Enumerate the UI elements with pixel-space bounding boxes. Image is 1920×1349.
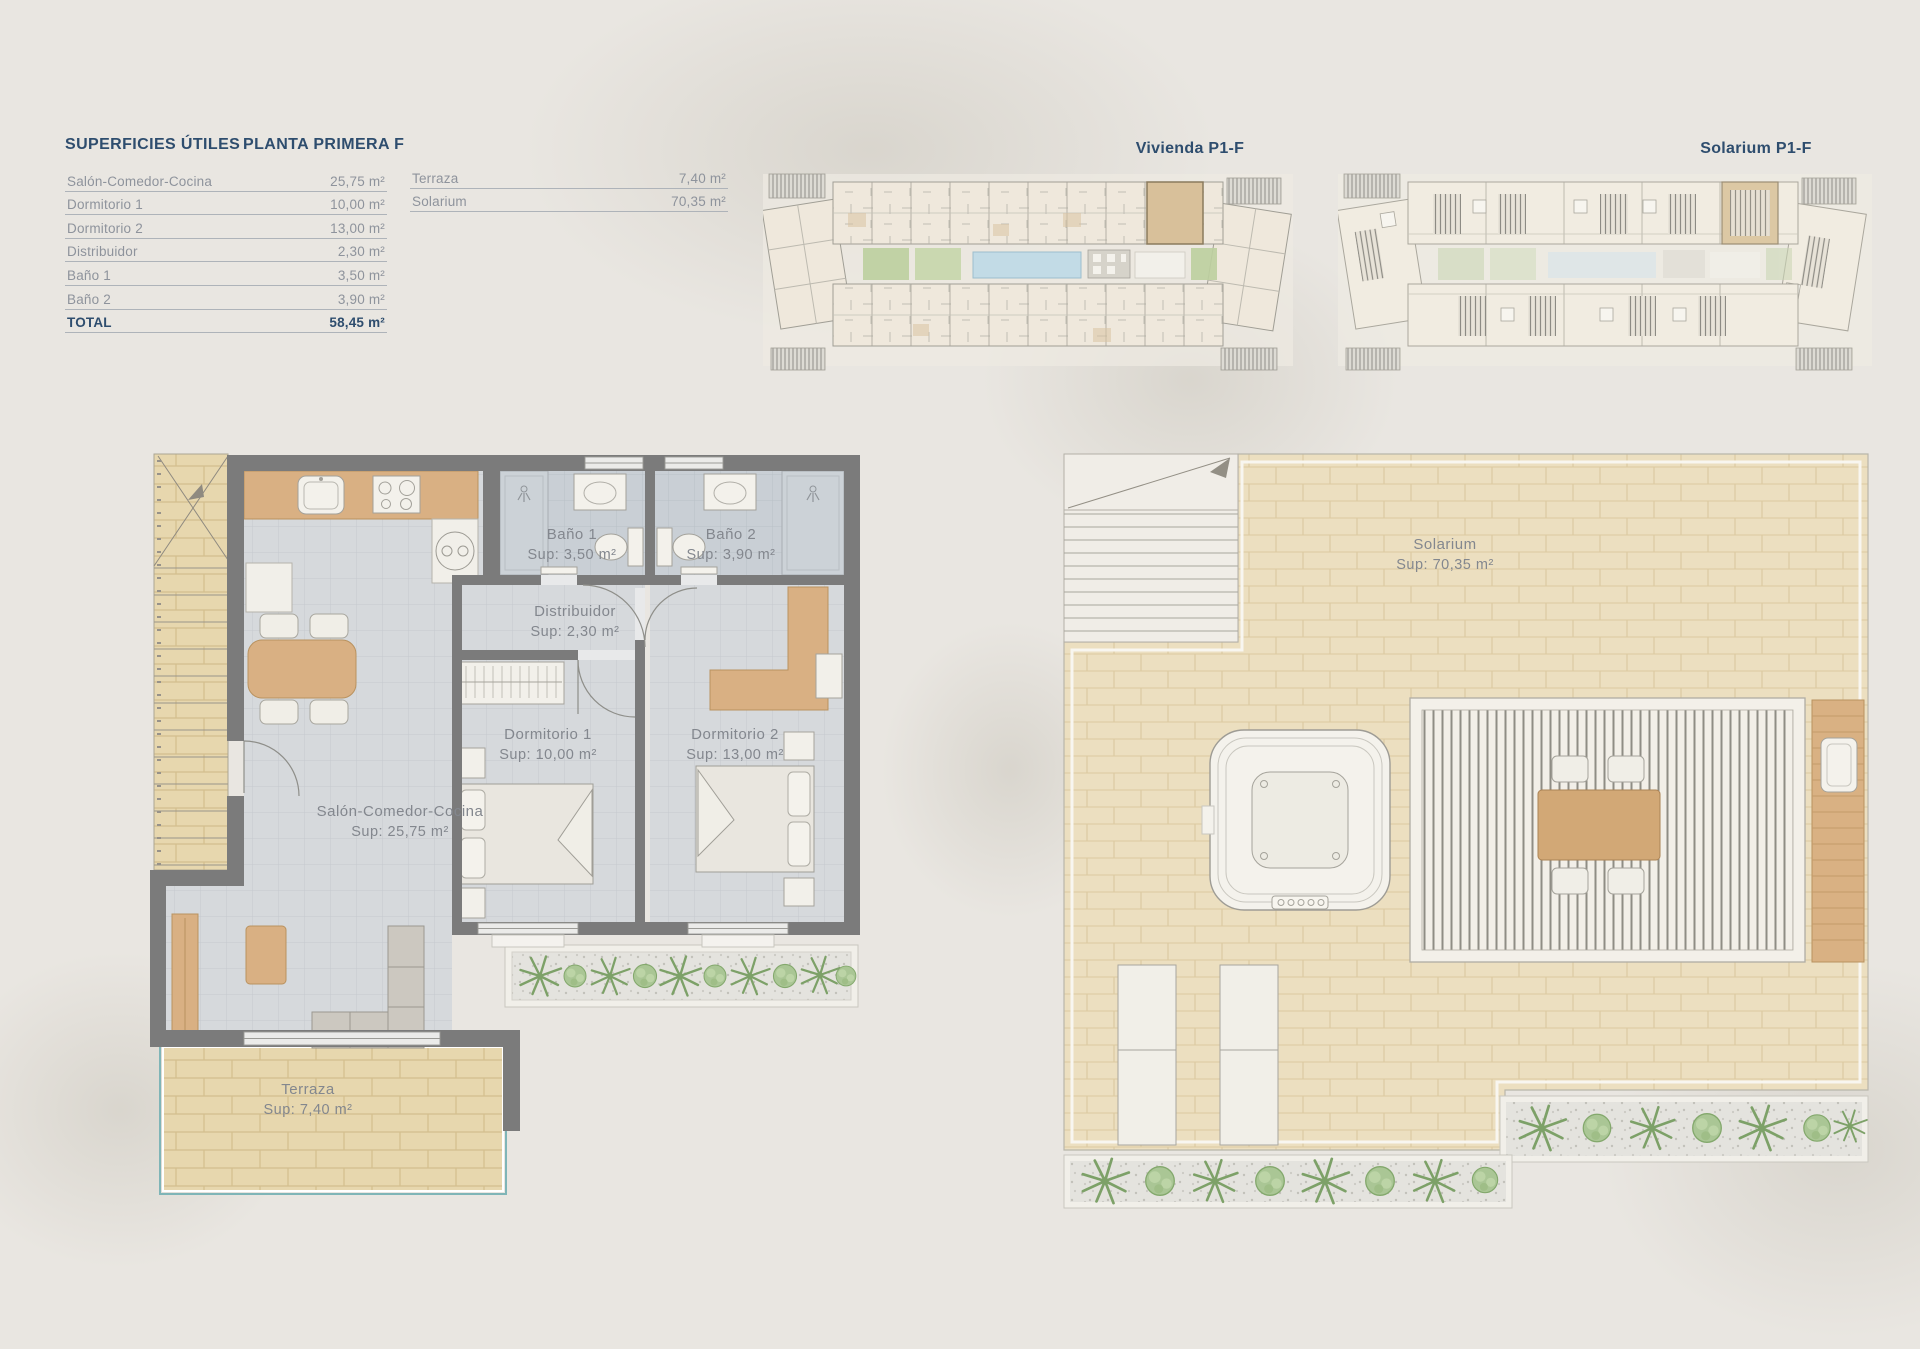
rooftop-stairs xyxy=(1064,454,1238,642)
row-label: Baño 2 xyxy=(67,292,111,307)
room-label-dormitorio1: Dormitorio 1 Sup: 10,00 m² xyxy=(499,725,597,765)
room-area: Sup: 10,00 m² xyxy=(499,747,597,763)
room-area: Sup: 13,00 m² xyxy=(686,747,784,763)
wood-deck xyxy=(1812,700,1864,962)
garden-right xyxy=(1500,1096,1868,1162)
floor-name: PLANTA PRIMERA F xyxy=(243,136,404,154)
table-row: Dormitorio 2 13,00 m² xyxy=(65,215,387,239)
table-row: Solarium 70,35 m² xyxy=(410,189,728,213)
room-area: Sup: 3,90 m² xyxy=(686,547,775,563)
room-name: Distribuidor xyxy=(534,603,616,620)
row-value: 70,35 m² xyxy=(671,194,726,209)
site-plan-solarium xyxy=(1338,168,1872,373)
exterior-stairs xyxy=(154,454,228,870)
pergola xyxy=(1410,698,1805,962)
areas-rows: Salón-Comedor-Cocina 25,75 m² Dormitorio… xyxy=(65,168,387,333)
highlighted-unit xyxy=(1147,182,1203,244)
row-value: 58,45 m² xyxy=(329,315,385,330)
room-label-bano2: Baño 2 Sup: 3,90 m² xyxy=(686,525,775,565)
overview-vivienda-title: Vivienda P1-F xyxy=(1136,140,1245,158)
row-label: Solarium xyxy=(412,194,467,209)
brochure-page: SUPERFICIES ÚTILES PLANTA PRIMERA F Saló… xyxy=(0,0,1920,1349)
row-value: 3,50 m² xyxy=(338,268,385,283)
row-value: 2,30 m² xyxy=(338,244,385,259)
row-label: Salón-Comedor-Cocina xyxy=(67,174,212,189)
areas-table: SUPERFICIES ÚTILES PLANTA PRIMERA F Saló… xyxy=(65,136,387,333)
row-label: Baño 1 xyxy=(67,268,111,283)
row-value: 25,75 m² xyxy=(330,174,385,189)
row-label: Terraza xyxy=(412,171,458,186)
room-name: Salón-Comedor-Cocina xyxy=(317,803,484,820)
row-value: 3,90 m² xyxy=(338,292,385,307)
row-value: 7,40 m² xyxy=(679,171,726,186)
planter-bed xyxy=(505,945,858,1007)
room-area: Sup: 7,40 m² xyxy=(263,1102,352,1118)
row-value: 10,00 m² xyxy=(330,197,385,212)
table-row: Salón-Comedor-Cocina 25,75 m² xyxy=(65,168,387,192)
room-label-dormitorio2: Dormitorio 2 Sup: 13,00 m² xyxy=(686,725,784,765)
jacuzzi xyxy=(1202,730,1390,910)
room-label-distribuidor: Distribuidor Sup: 2,30 m² xyxy=(530,602,619,642)
table-row: Baño 1 3,50 m² xyxy=(65,262,387,286)
row-label: Distribuidor xyxy=(67,244,138,259)
row-value: 13,00 m² xyxy=(330,221,385,236)
table-row: Dormitorio 1 10,00 m² xyxy=(65,192,387,216)
table-row-total: TOTAL 58,45 m² xyxy=(65,310,387,334)
areas-table-title: SUPERFICIES ÚTILES xyxy=(65,136,240,153)
row-label: Dormitorio 2 xyxy=(67,221,143,236)
room-label-terraza: Terraza Sup: 7,40 m² xyxy=(263,1080,352,1120)
areas-table-header: SUPERFICIES ÚTILES PLANTA PRIMERA F xyxy=(65,136,387,162)
room-area: Sup: 2,30 m² xyxy=(530,624,619,640)
room-area: Sup: 3,50 m² xyxy=(527,547,616,563)
room-area: Sup: 25,75 m² xyxy=(351,824,449,840)
exterior-areas-table: Terraza 7,40 m² Solarium 70,35 m² xyxy=(410,165,728,212)
table-row: Distribuidor 2,30 m² xyxy=(65,239,387,263)
table-row: Terraza 7,40 m² xyxy=(410,165,728,189)
room-area: Sup: 70,35 m² xyxy=(1396,557,1494,573)
room-name: Solarium xyxy=(1413,536,1476,553)
site-plan-vivienda xyxy=(763,168,1293,373)
room-label-bano1: Baño 1 Sup: 3,50 m² xyxy=(527,525,616,565)
room-label-salon: Salón-Comedor-Cocina Sup: 25,75 m² xyxy=(317,802,484,842)
garden-left xyxy=(1064,1155,1512,1208)
room-name: Baño 2 xyxy=(706,526,757,543)
row-label: TOTAL xyxy=(67,315,112,330)
overview-solarium-title: Solarium P1-F xyxy=(1700,140,1811,158)
row-label: Dormitorio 1 xyxy=(67,197,143,212)
room-name: Dormitorio 1 xyxy=(504,726,592,743)
room-name: Terraza xyxy=(281,1081,335,1098)
table-row: Baño 2 3,90 m² xyxy=(65,286,387,310)
room-name: Dormitorio 2 xyxy=(691,726,779,743)
room-label-solarium: Solarium Sup: 70,35 m² xyxy=(1396,535,1494,575)
room-name: Baño 1 xyxy=(547,526,598,543)
